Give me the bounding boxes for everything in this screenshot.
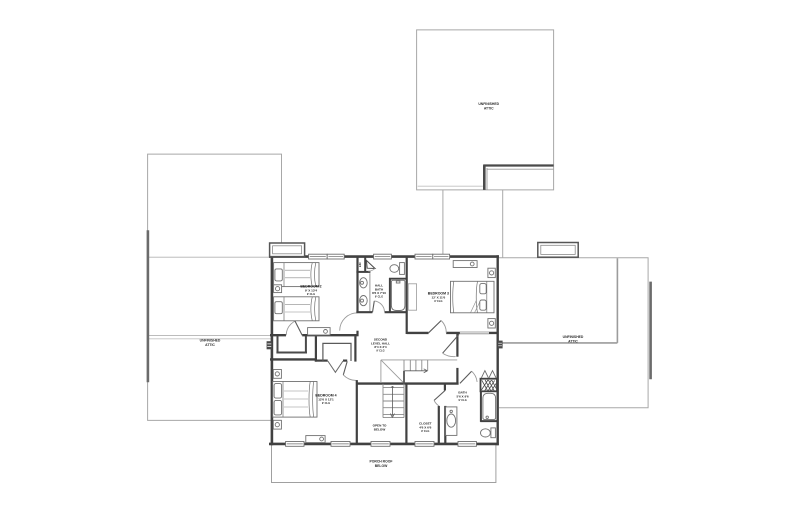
svg-text:8'4 X 3'4: 8'4 X 3'4 bbox=[374, 345, 386, 349]
svg-text:UNFINISHED: UNFINISHED bbox=[200, 339, 221, 343]
svg-text:9' CLG: 9' CLG bbox=[322, 401, 330, 405]
svg-text:12' X 11'6: 12' X 11'6 bbox=[432, 296, 446, 300]
svg-text:ATTIC: ATTIC bbox=[484, 107, 494, 111]
svg-text:12'6 X 12'1: 12'6 X 12'1 bbox=[318, 398, 334, 402]
svg-text:ATTIC: ATTIC bbox=[568, 340, 578, 344]
svg-text:9' CLG: 9' CLG bbox=[458, 398, 466, 402]
svg-text:UNFINISHED: UNFINISHED bbox=[563, 335, 584, 339]
svg-text:9' CLG: 9' CLG bbox=[307, 292, 315, 296]
svg-text:8'6 X 7'10: 8'6 X 7'10 bbox=[372, 291, 386, 295]
svg-text:9' CLG: 9' CLG bbox=[421, 429, 429, 433]
svg-text:LIN: LIN bbox=[358, 263, 362, 268]
svg-text:9' X 13'4: 9' X 13'4 bbox=[305, 289, 317, 293]
svg-text:ATTIC: ATTIC bbox=[205, 343, 215, 347]
svg-text:4'6 X 6'6: 4'6 X 6'6 bbox=[419, 425, 431, 429]
svg-text:UNFINISHED: UNFINISHED bbox=[478, 102, 499, 106]
svg-text:9' CLG: 9' CLG bbox=[375, 295, 383, 299]
svg-text:PORCH ROOF: PORCH ROOF bbox=[370, 460, 393, 464]
svg-text:9' CLG: 9' CLG bbox=[434, 299, 442, 303]
svg-text:BELOW: BELOW bbox=[375, 464, 388, 468]
svg-text:9' CLG: 9' CLG bbox=[376, 349, 384, 353]
svg-text:BELOW: BELOW bbox=[374, 427, 386, 431]
svg-text:5'6 X 9'6: 5'6 X 9'6 bbox=[457, 394, 469, 398]
